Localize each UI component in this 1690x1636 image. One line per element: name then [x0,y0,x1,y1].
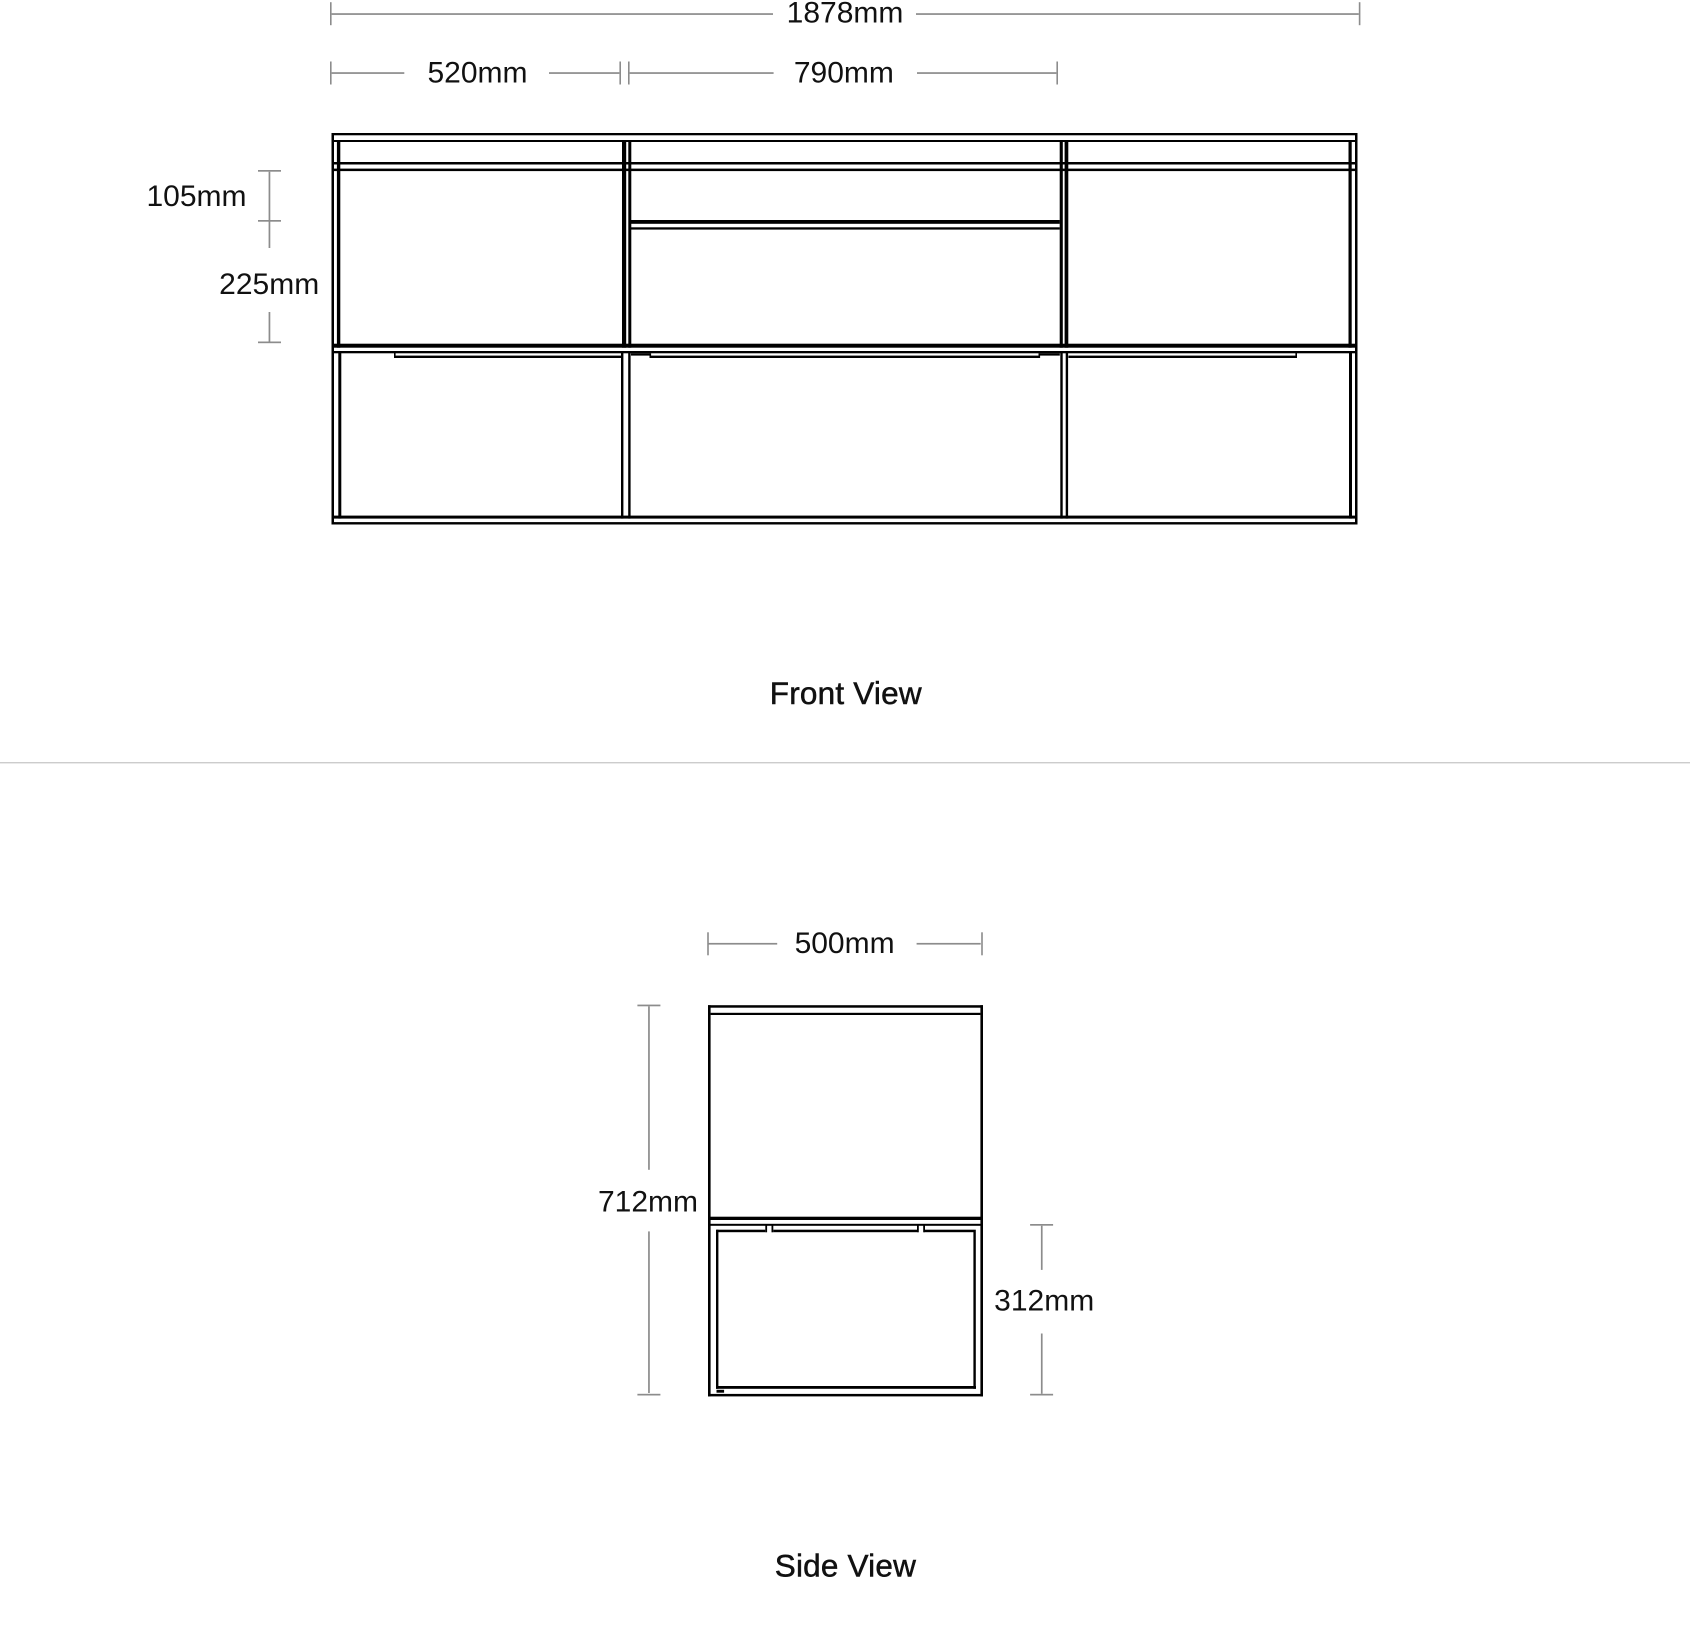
svg-text:225mm: 225mm [219,268,319,301]
svg-text:Side View: Side View [775,1548,916,1584]
svg-text:712mm: 712mm [598,1186,698,1219]
svg-text:Front View: Front View [770,675,922,711]
svg-text:312mm: 312mm [994,1285,1094,1318]
svg-text:500mm: 500mm [795,927,895,960]
svg-text:790mm: 790mm [794,57,894,90]
svg-text:105mm: 105mm [146,180,246,213]
svg-text:520mm: 520mm [427,57,527,90]
svg-text:1878mm: 1878mm [787,0,904,30]
